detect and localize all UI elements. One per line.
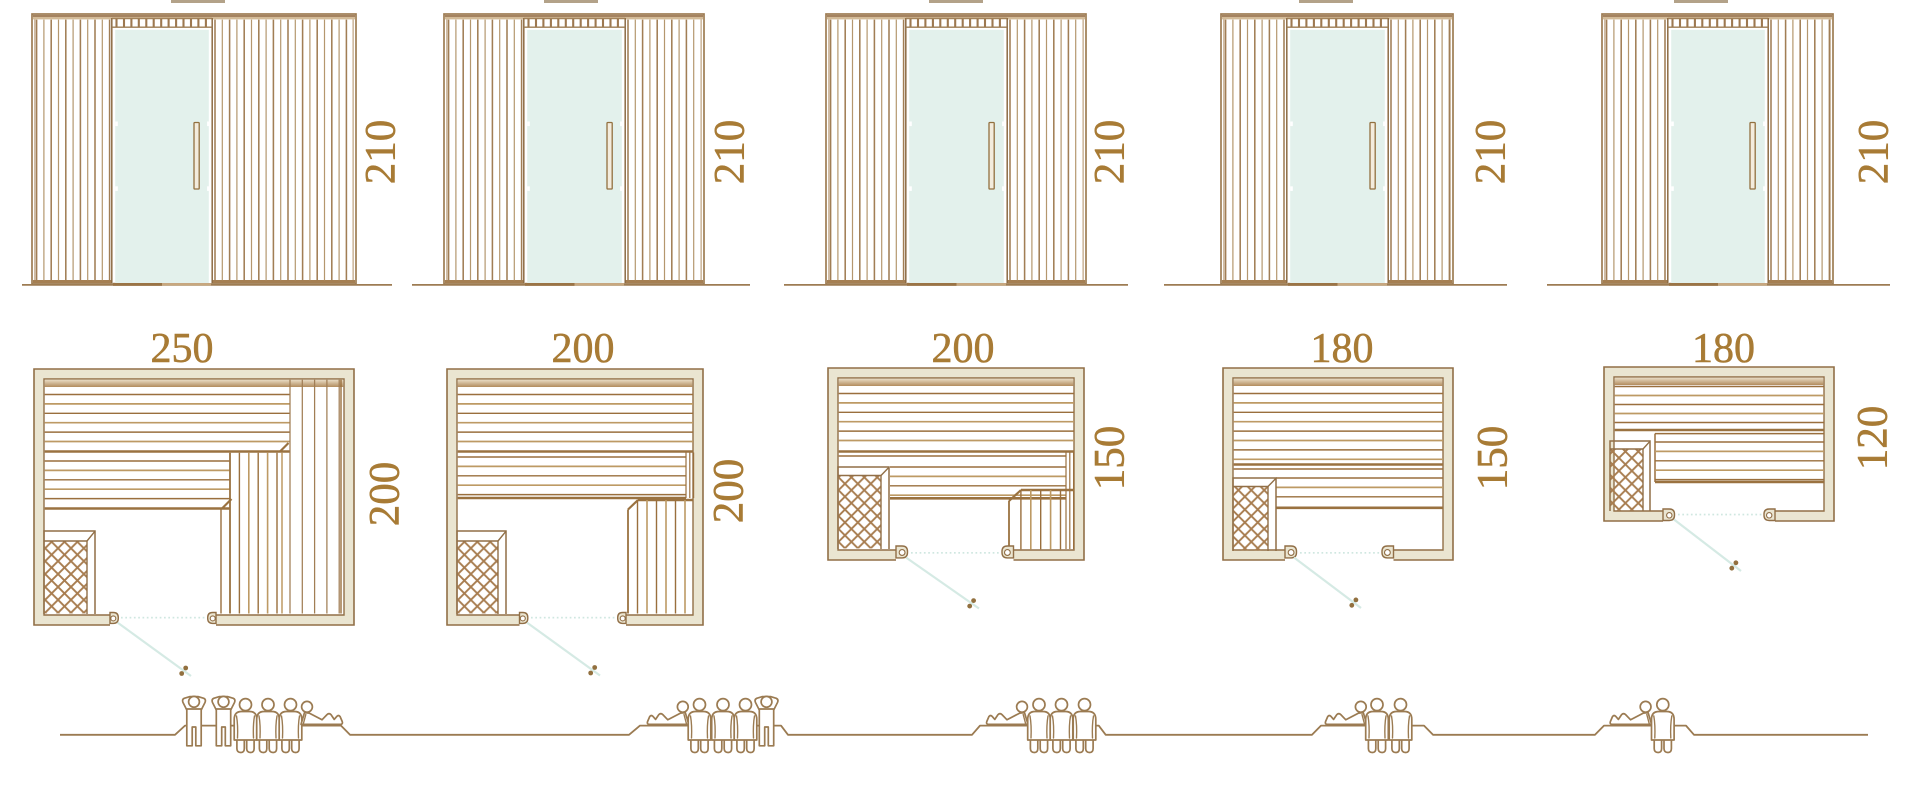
svg-text:120: 120 [1849, 406, 1896, 471]
svg-text:210: 210 [1850, 120, 1897, 185]
svg-text:180: 180 [1311, 326, 1374, 372]
svg-text:200: 200 [361, 462, 408, 527]
svg-text:200: 200 [705, 459, 752, 524]
svg-text:210: 210 [1467, 120, 1514, 185]
svg-text:200: 200 [932, 326, 995, 372]
svg-text:210: 210 [1086, 120, 1133, 185]
svg-text:200: 200 [552, 326, 615, 372]
svg-text:180: 180 [1692, 326, 1755, 372]
svg-text:210: 210 [706, 120, 753, 185]
svg-text:210: 210 [357, 120, 404, 185]
svg-text:250: 250 [151, 326, 214, 372]
svg-text:150: 150 [1469, 426, 1516, 491]
svg-text:150: 150 [1086, 426, 1133, 491]
